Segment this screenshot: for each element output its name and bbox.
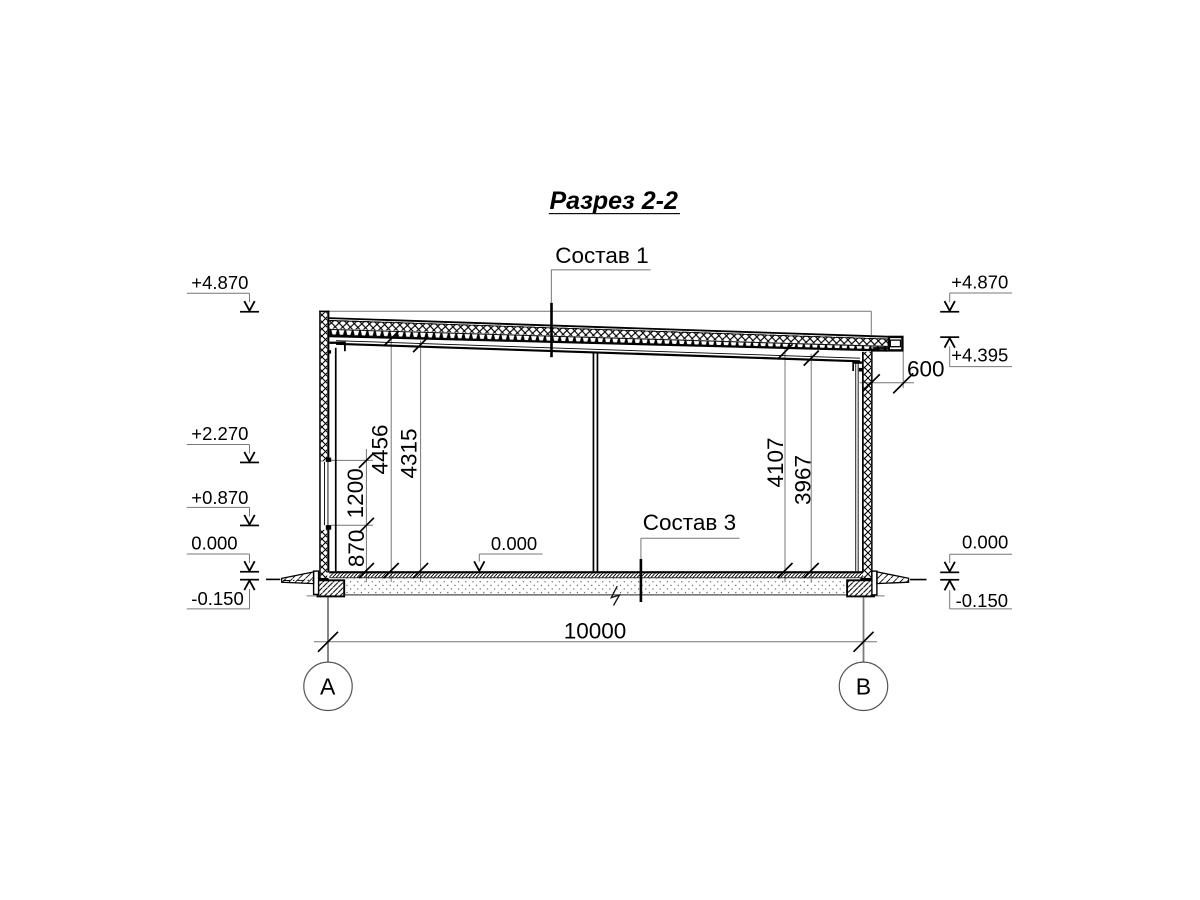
svg-text:+0.870: +0.870 — [191, 487, 248, 508]
svg-text:-0.150: -0.150 — [191, 588, 243, 609]
svg-text:600: 600 — [907, 357, 945, 382]
svg-text:0.000: 0.000 — [962, 532, 1008, 553]
svg-text:4107: 4107 — [763, 437, 788, 487]
svg-text:870: 870 — [344, 530, 369, 568]
svg-text:10000: 10000 — [564, 619, 627, 644]
svg-text:0.000: 0.000 — [491, 533, 537, 554]
svg-text:4315: 4315 — [397, 428, 422, 478]
svg-text:+4.870: +4.870 — [191, 272, 248, 293]
svg-text:Состав 1: Состав 1 — [555, 243, 648, 268]
svg-text:Состав 3: Состав 3 — [643, 510, 736, 535]
svg-text:3967: 3967 — [790, 455, 815, 505]
svg-text:1200: 1200 — [343, 468, 368, 518]
svg-text:+2.270: +2.270 — [191, 423, 248, 444]
svg-text:0.000: 0.000 — [191, 532, 237, 553]
svg-text:-0.150: -0.150 — [956, 590, 1008, 611]
svg-text:4456: 4456 — [368, 424, 393, 474]
svg-text:Разрез 2-2: Разрез 2-2 — [550, 187, 678, 215]
svg-text:А: А — [320, 674, 336, 700]
svg-text:В: В — [856, 674, 871, 700]
svg-text:+4.395: +4.395 — [951, 345, 1008, 366]
svg-text:+4.870: +4.870 — [951, 272, 1008, 293]
